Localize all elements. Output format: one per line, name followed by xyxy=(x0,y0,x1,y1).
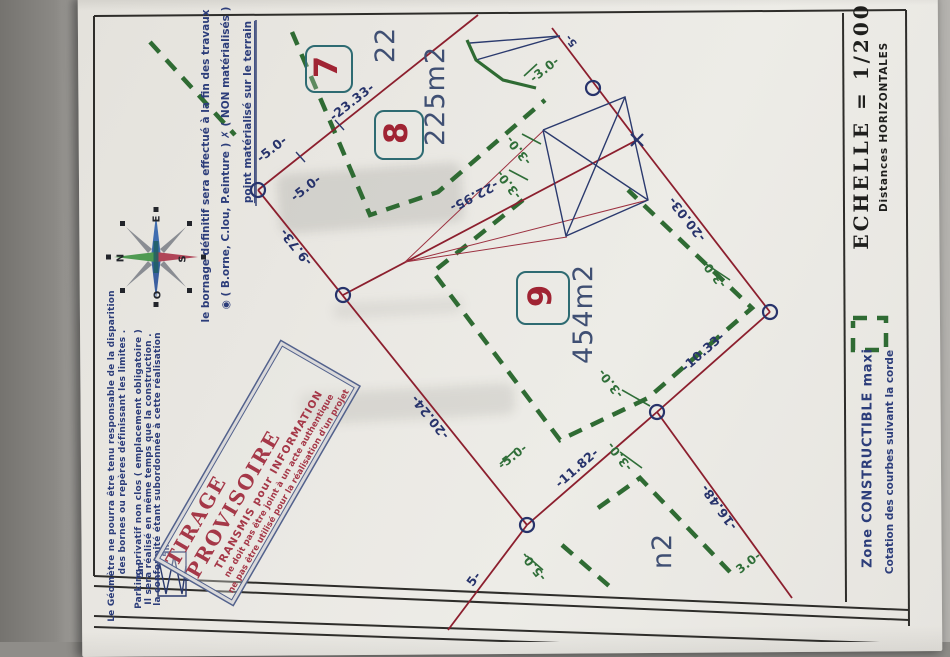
constructible-zone-dash xyxy=(598,478,730,572)
boundary-line xyxy=(657,412,792,598)
setback-tick xyxy=(500,451,514,464)
survey-drawing xyxy=(0,0,950,642)
plan-frame-line xyxy=(94,10,906,16)
boundary-line xyxy=(258,15,478,190)
setback-tick xyxy=(524,64,537,76)
parcel-9-box xyxy=(516,271,570,325)
boundary-line xyxy=(448,525,527,630)
setback-tick xyxy=(509,170,528,180)
setback-tick xyxy=(620,452,642,468)
plan-frame-line xyxy=(94,616,909,642)
constructible-zone-dash xyxy=(150,42,235,135)
setback-tick xyxy=(527,556,543,570)
boundary-line xyxy=(637,140,770,312)
plan-frame-line xyxy=(906,10,909,626)
boundary-line xyxy=(657,312,770,412)
plan-frame-line xyxy=(843,13,846,602)
sight-line xyxy=(405,131,543,262)
compass-rose-icon xyxy=(106,207,206,307)
parcel-7-box xyxy=(305,45,353,93)
constructible-zone-dash xyxy=(853,318,886,350)
constructible-zone-dash xyxy=(562,545,616,592)
sight-line xyxy=(405,200,648,262)
boundary-line xyxy=(527,412,657,525)
slope-arrow xyxy=(467,40,536,88)
boundary-line xyxy=(552,28,637,140)
parcel-8-box xyxy=(374,110,424,160)
plan-photo: point matérialisé sur le terrain◉ ( B.or… xyxy=(0,0,950,642)
